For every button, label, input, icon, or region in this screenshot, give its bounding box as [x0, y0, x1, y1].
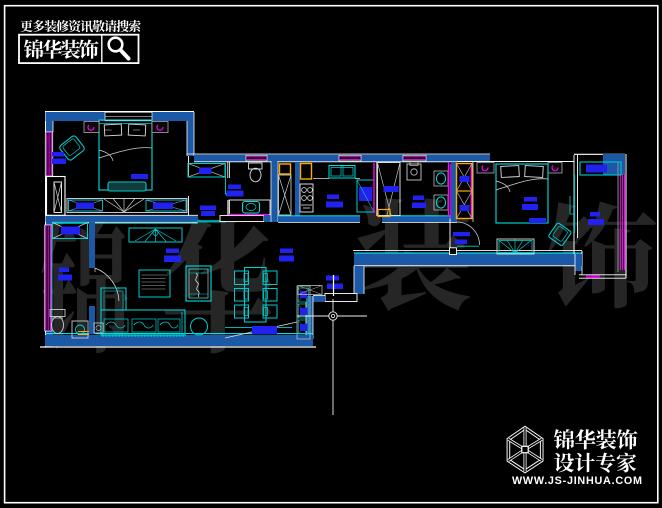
svg-text:WWW.JS-JINHUA.COM: WWW.JS-JINHUA.COM [512, 475, 642, 487]
